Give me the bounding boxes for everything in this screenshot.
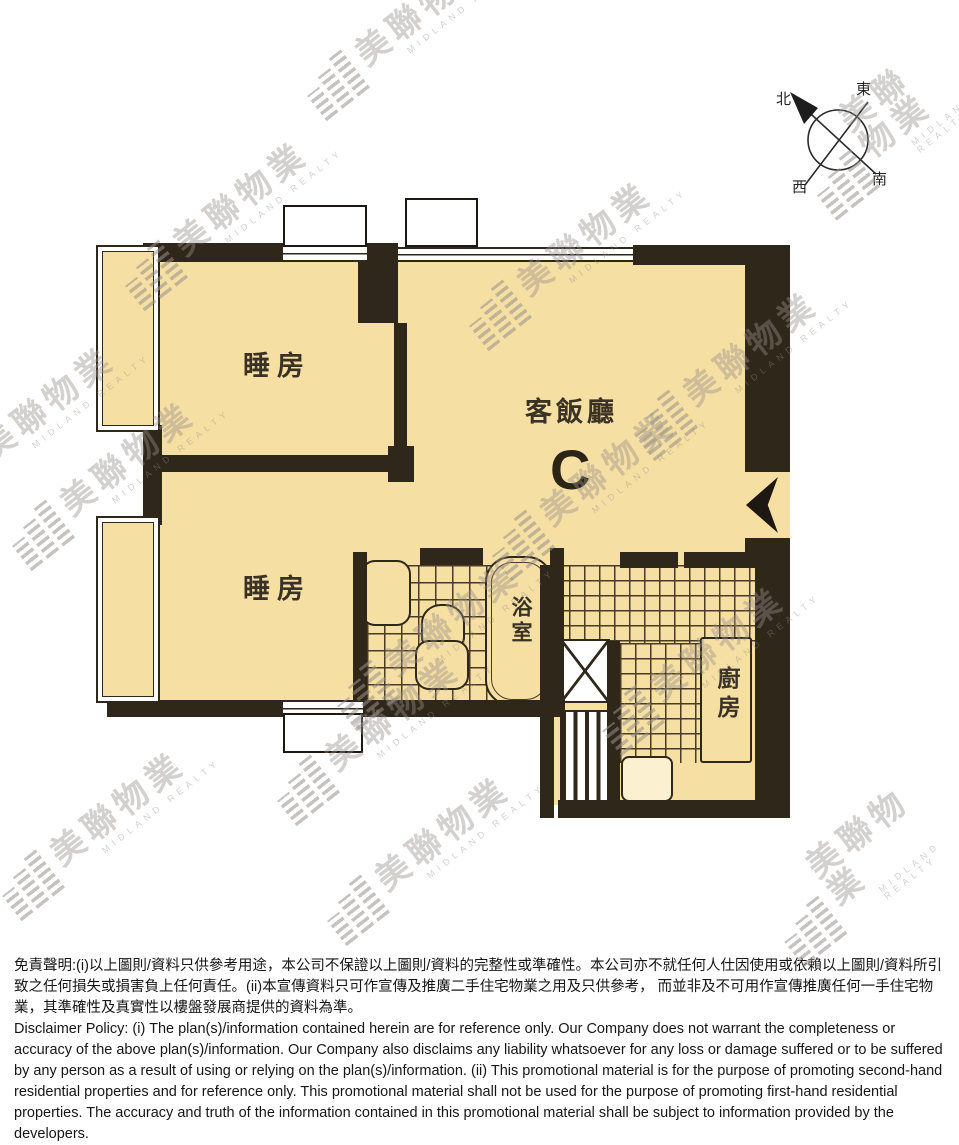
- pipe-duct: [560, 710, 610, 802]
- wall-segment: [684, 552, 745, 568]
- wall-segment: [620, 552, 678, 568]
- disclaimer-english: Disclaimer Policy: (i) The plan(s)/infor…: [14, 1019, 952, 1145]
- hallway-floor: [356, 470, 552, 552]
- bathroom-sink: [361, 560, 411, 626]
- lift-x-mark: [562, 641, 608, 701]
- bay-window: [96, 245, 160, 432]
- wall-segment: [143, 455, 390, 472]
- compass-south-label: 南: [872, 168, 887, 189]
- floor-plan-page: { "compass": { "north": "北", "east": "東"…: [0, 0, 959, 1130]
- bay-window-glass: [102, 251, 154, 426]
- wall-segment: [420, 548, 483, 565]
- wall-segment: [745, 258, 790, 472]
- bedroom-1-label: 睡房: [243, 344, 311, 383]
- wall-segment: [143, 425, 162, 525]
- compass-north-label: 北: [776, 88, 791, 109]
- kitchen-sink: [621, 756, 673, 802]
- kitchen-label: 廚房: [709, 666, 743, 724]
- bay-window: [96, 516, 160, 703]
- wall-segment: [755, 565, 790, 818]
- window-sill: [398, 247, 633, 262]
- toilet-bowl: [415, 640, 469, 690]
- bay-window-glass: [102, 522, 154, 697]
- wall-segment: [550, 548, 564, 712]
- compass-west-label: 西: [792, 176, 807, 197]
- kitchen-tiled-floor: [620, 643, 700, 763]
- window-sill: [283, 245, 367, 262]
- bedroom-2-label: 睡房: [243, 567, 311, 606]
- unit-letter: C: [550, 442, 590, 498]
- kitchen-tiled-floor: [554, 565, 755, 643]
- disclaimer-block: 免責聲明:(i)以上圖則/資料只供參考用途，本公司不保證以上圖則/資料的完整性或…: [14, 956, 952, 1145]
- compass-east-label: 東: [856, 78, 871, 99]
- bathroom-label: 浴室: [506, 596, 536, 646]
- wall-segment: [394, 323, 407, 459]
- window: [283, 205, 367, 247]
- lift-shaft: [560, 639, 610, 703]
- living-dining-label: 客飯廳: [525, 390, 618, 429]
- wall-segment: [143, 243, 288, 262]
- wall-segment: [388, 446, 414, 482]
- wall-segment: [745, 538, 790, 568]
- wall-segment: [353, 552, 367, 700]
- window: [405, 198, 478, 247]
- wall-segment: [607, 641, 620, 818]
- compass-north-needle: [790, 92, 818, 124]
- disclaimer-chinese: 免責聲明:(i)以上圖則/資料只供參考用途，本公司不保證以上圖則/資料的完整性或…: [14, 956, 952, 1019]
- wall-segment: [558, 800, 790, 818]
- window: [283, 713, 363, 753]
